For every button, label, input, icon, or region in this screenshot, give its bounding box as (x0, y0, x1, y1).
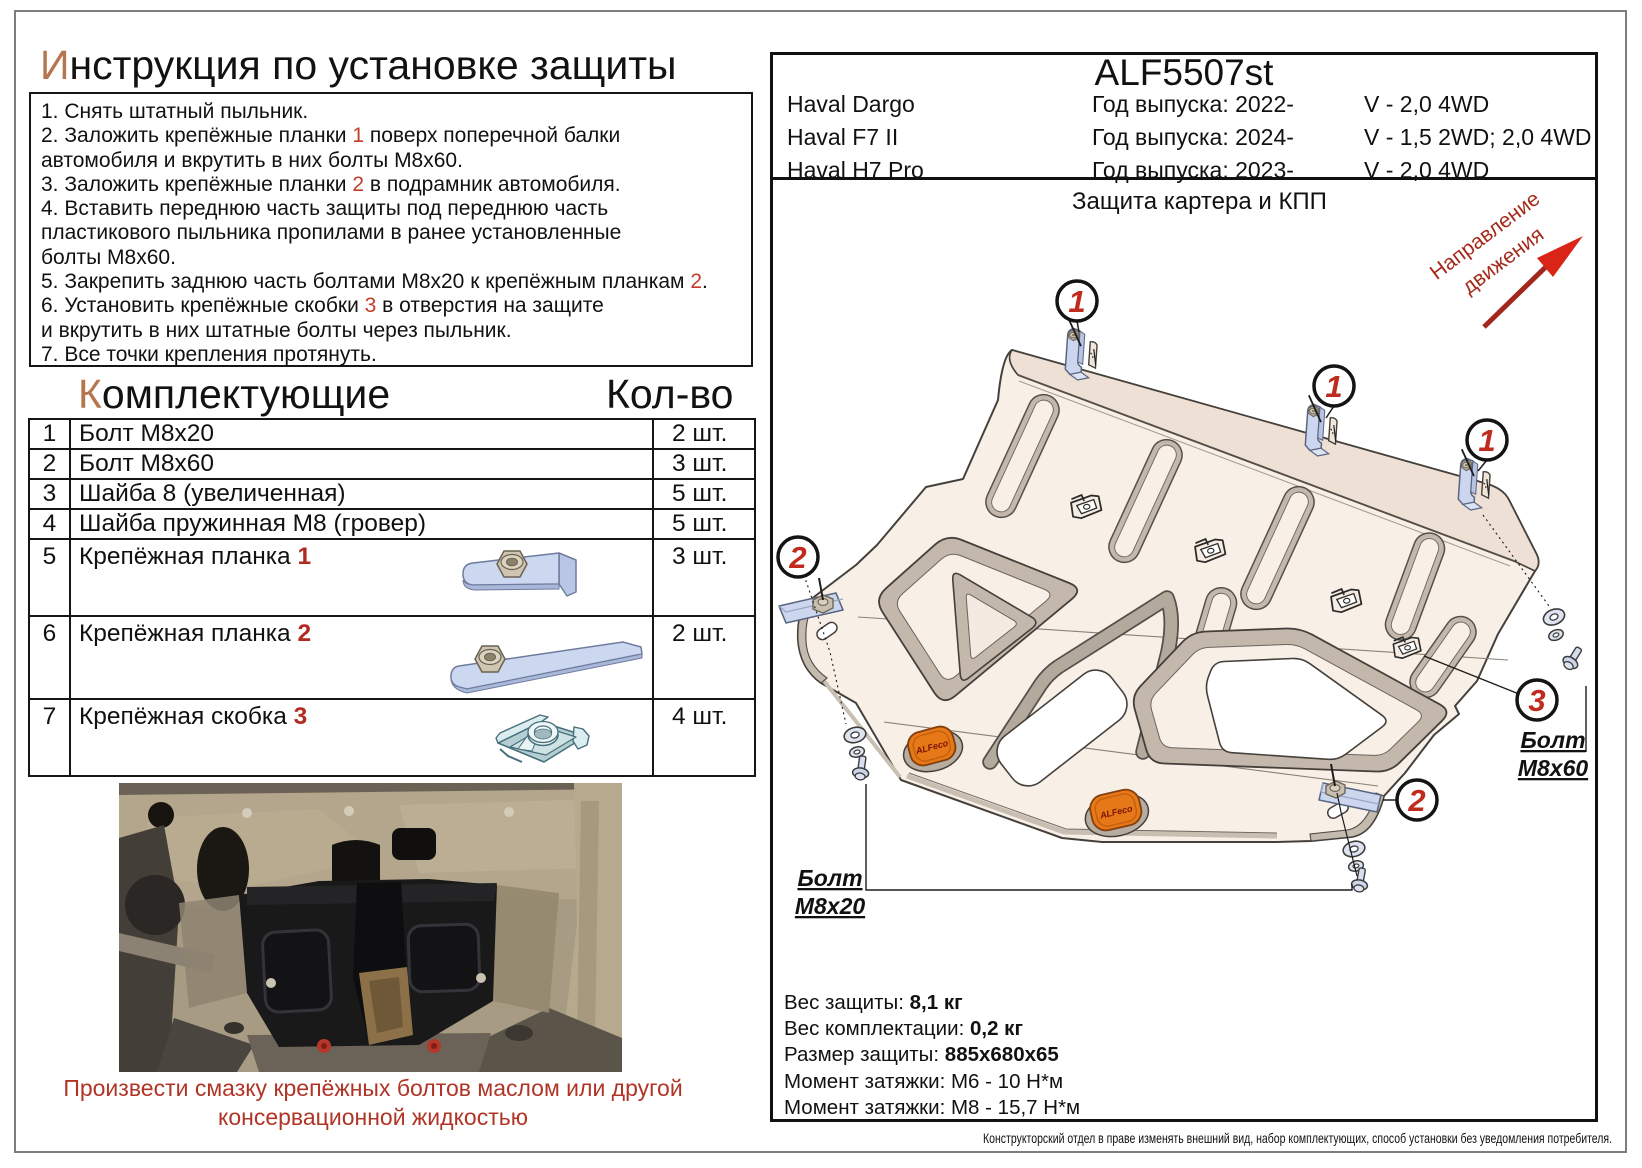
svg-text:2: 2 (1407, 783, 1425, 818)
svg-text:1: 1 (1325, 369, 1342, 404)
svg-text:2: 2 (788, 540, 806, 575)
svg-text:Болт: Болт (797, 865, 862, 891)
svg-text:1: 1 (1068, 284, 1085, 319)
svg-text:3: 3 (1528, 683, 1545, 718)
svg-text:М8х20: М8х20 (795, 893, 866, 919)
svg-text:Болт: Болт (1520, 727, 1585, 753)
svg-text:1: 1 (1478, 423, 1495, 458)
svg-text:М8х60: М8х60 (1518, 755, 1589, 781)
